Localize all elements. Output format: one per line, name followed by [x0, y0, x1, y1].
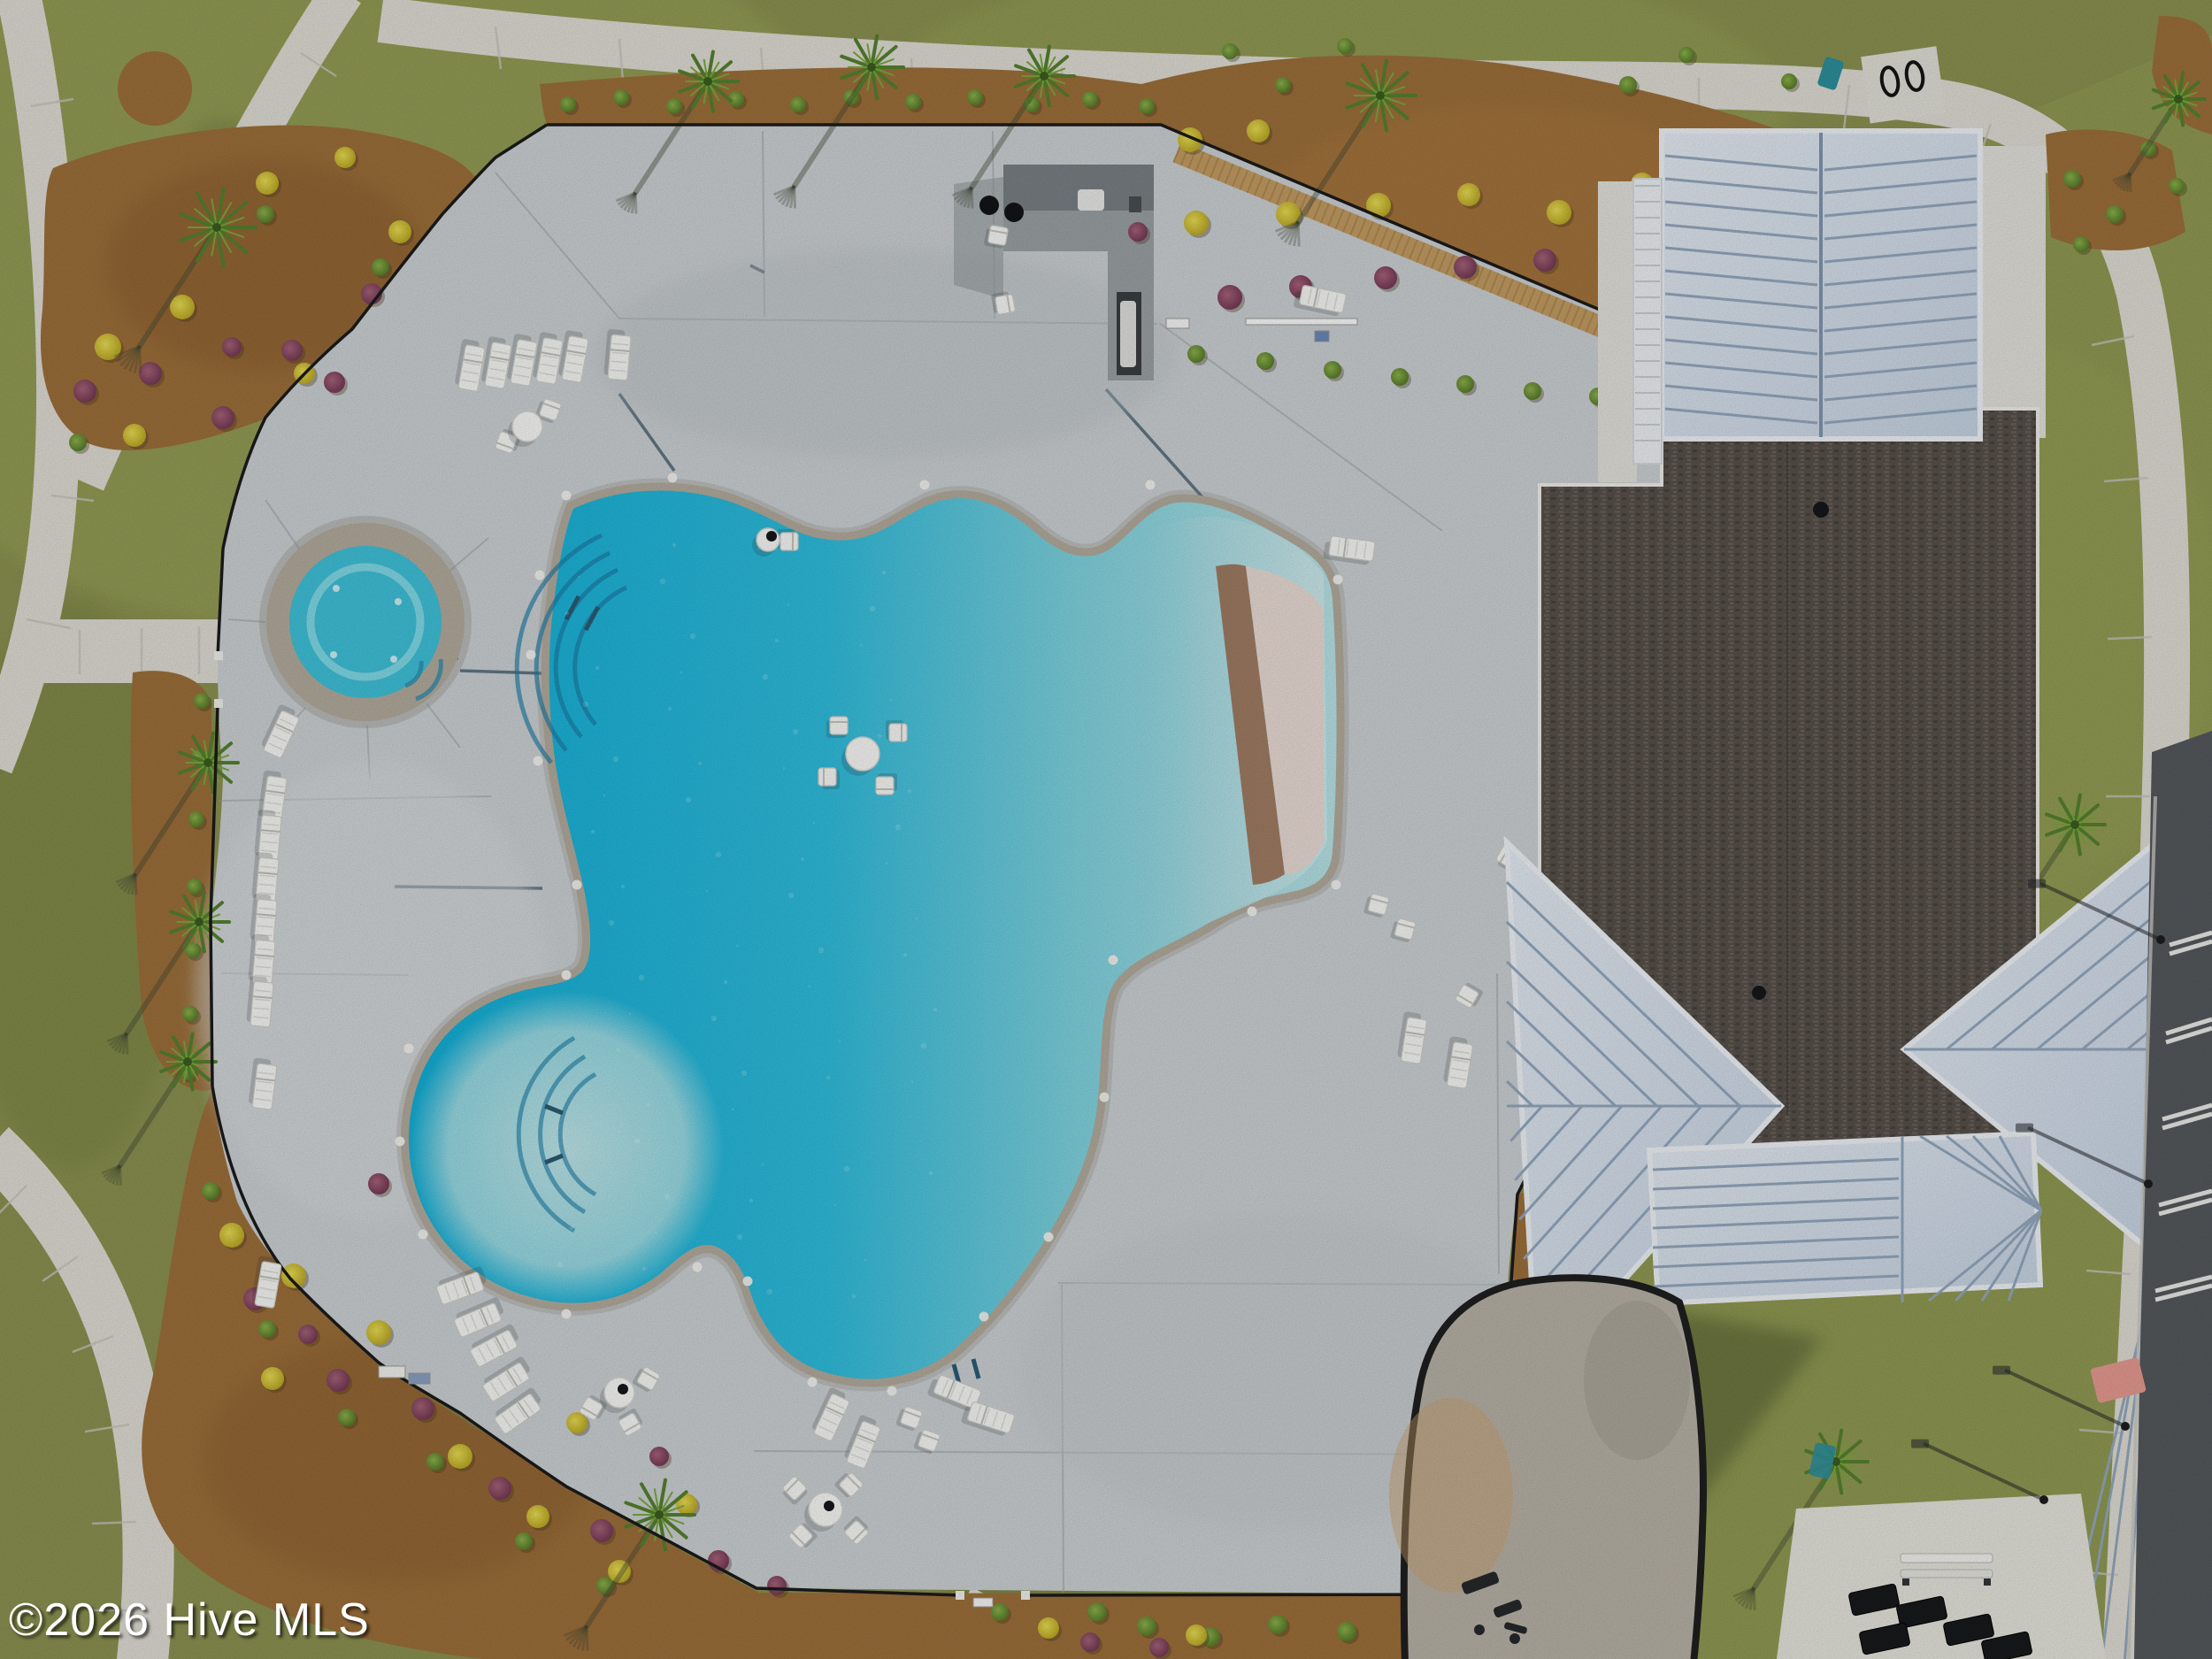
photo-grain	[0, 0, 2212, 1659]
watermark: ©2026 Hive MLS	[9, 1594, 370, 1647]
scene-canvas	[0, 0, 2212, 1659]
aerial-photo: ©2026 Hive MLS	[0, 0, 2212, 1659]
